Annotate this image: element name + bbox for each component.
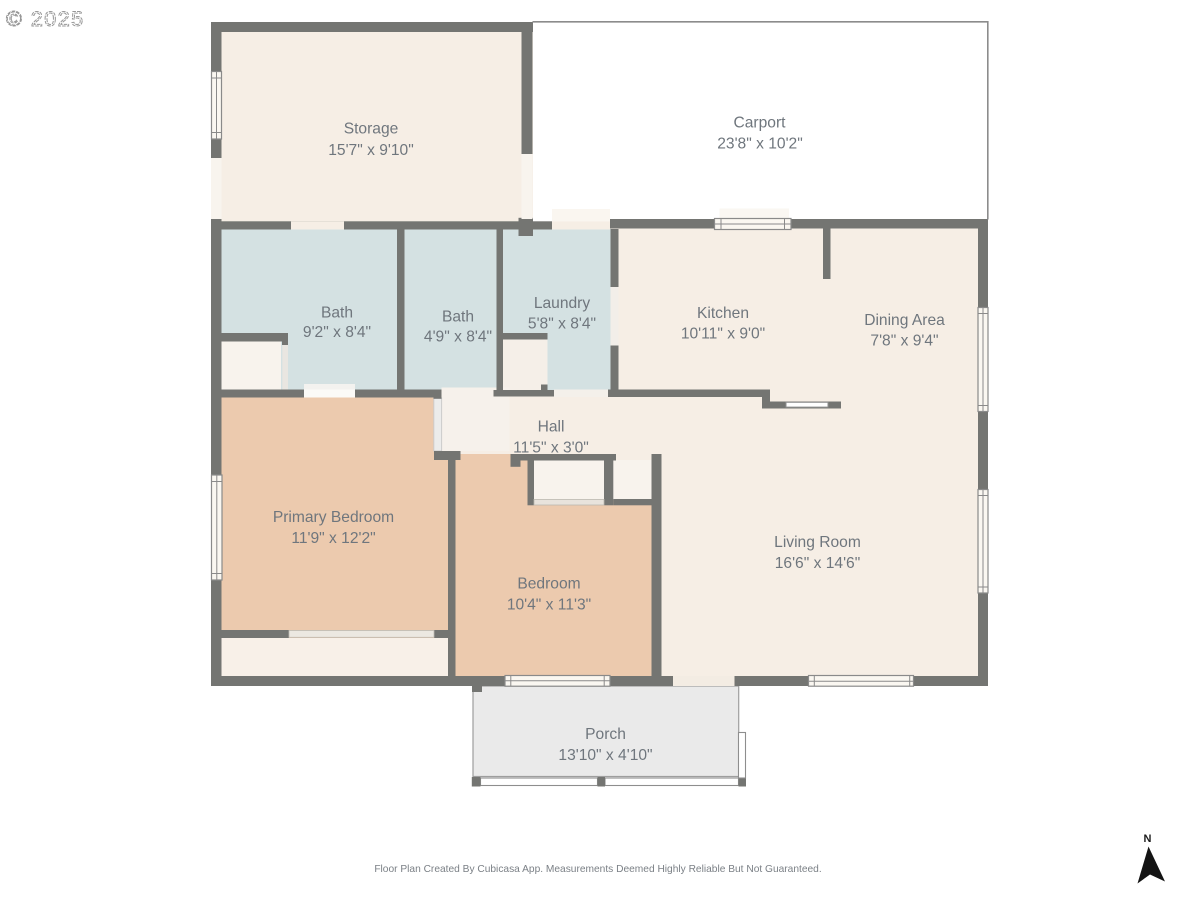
svg-text:11'5" x 3'0": 11'5" x 3'0" [513, 440, 589, 457]
svg-text:9'2" x 8'4": 9'2" x 8'4" [303, 324, 371, 341]
svg-text:23'8" x 10'2": 23'8" x 10'2" [717, 135, 803, 152]
svg-text:10'11" x 9'0": 10'11" x 9'0" [681, 326, 765, 343]
svg-text:Bath: Bath [442, 309, 474, 326]
svg-text:7'8" x 9'4": 7'8" x 9'4" [870, 333, 938, 350]
svg-text:Kitchen: Kitchen [697, 305, 749, 322]
svg-text:10'4" x 11'3": 10'4" x 11'3" [507, 597, 591, 614]
svg-text:Bedroom: Bedroom [517, 576, 580, 593]
svg-text:16'6" x 14'6": 16'6" x 14'6" [775, 555, 861, 572]
svg-text:N: N [1144, 833, 1152, 845]
svg-text:11'9" x 12'2": 11'9" x 12'2" [291, 530, 375, 547]
svg-text:Primary Bedroom: Primary Bedroom [273, 509, 394, 526]
svg-text:4'9" x 8'4": 4'9" x 8'4" [424, 329, 492, 346]
svg-text:Hall: Hall [538, 419, 565, 436]
svg-text:Storage: Storage [344, 121, 399, 138]
svg-text:Carport: Carport [734, 115, 787, 132]
svg-text:Floor Plan Created By Cubicasa: Floor Plan Created By Cubicasa App. Meas… [374, 864, 821, 875]
svg-text:Porch: Porch [585, 726, 626, 743]
svg-text:5'8" x 8'4": 5'8" x 8'4" [528, 316, 596, 333]
svg-text:Bath: Bath [321, 305, 353, 322]
svg-text:Dining Area: Dining Area [864, 312, 945, 329]
svg-text:13'10" x 4'10": 13'10" x 4'10" [558, 747, 652, 764]
svg-text:© 2025: © 2025 [6, 7, 85, 31]
svg-text:Living Room: Living Room [774, 534, 861, 551]
svg-text:Laundry: Laundry [534, 295, 591, 312]
svg-text:15'7" x 9'10": 15'7" x 9'10" [328, 142, 414, 159]
